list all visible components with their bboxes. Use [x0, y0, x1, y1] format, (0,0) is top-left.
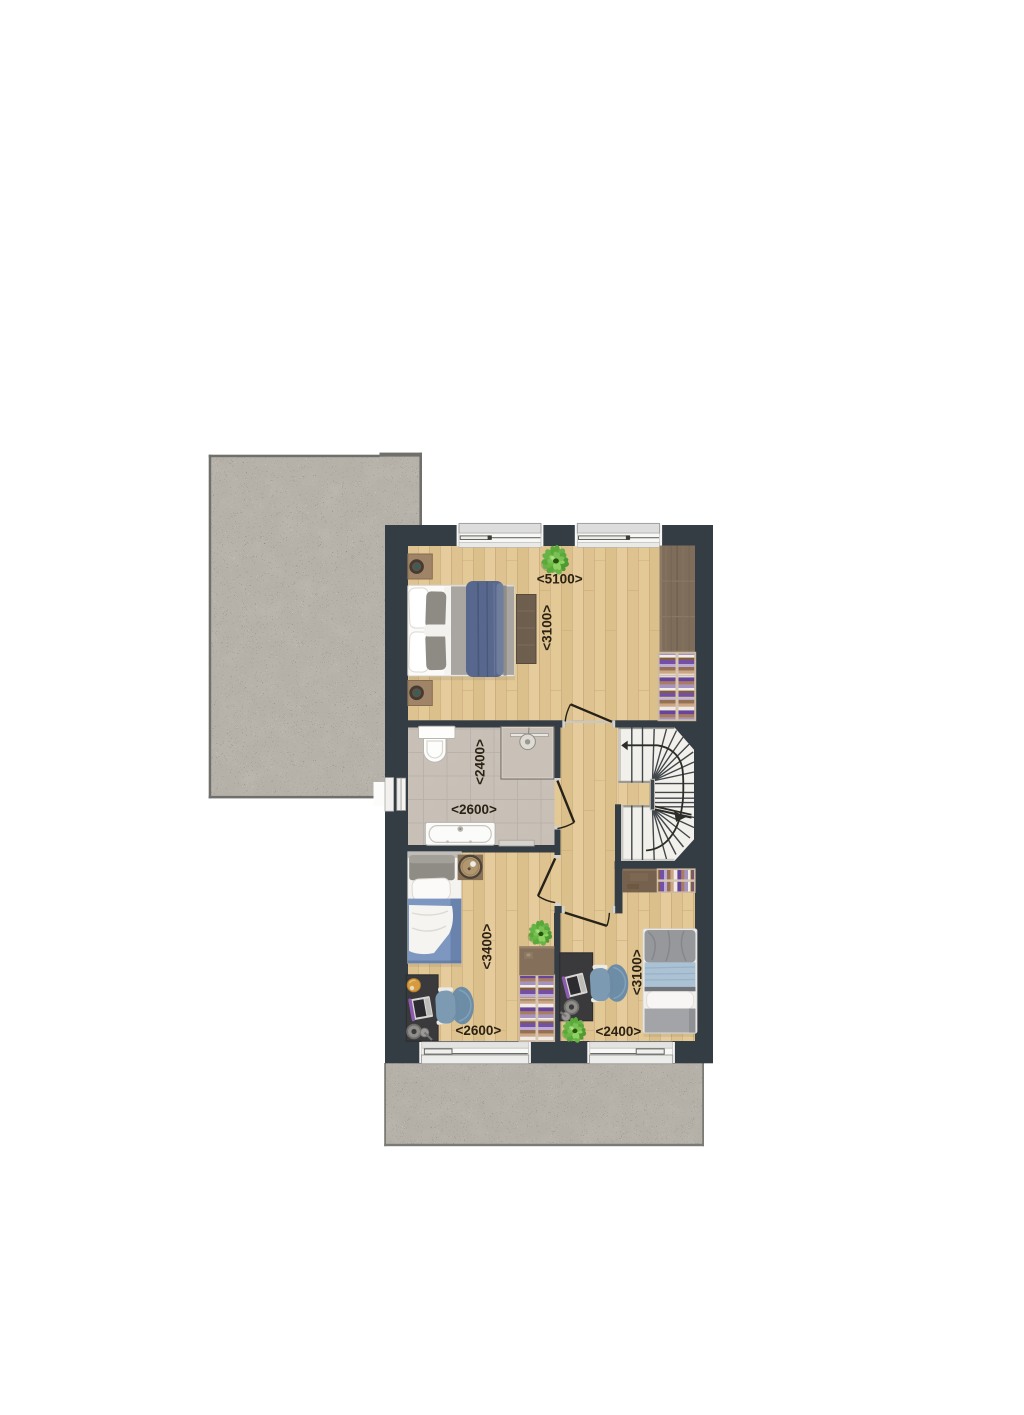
svg-text:<3400>: <3400> [480, 924, 495, 970]
svg-text:<2600>: <2600> [455, 1023, 501, 1038]
svg-text:<2400>: <2400> [473, 739, 488, 785]
svg-text:<3100>: <3100> [630, 949, 645, 995]
svg-text:<2400>: <2400> [595, 1024, 641, 1039]
svg-text:<5100>: <5100> [537, 572, 583, 587]
svg-text:<3100>: <3100> [540, 605, 555, 651]
svg-text:<2600>: <2600> [451, 802, 497, 817]
